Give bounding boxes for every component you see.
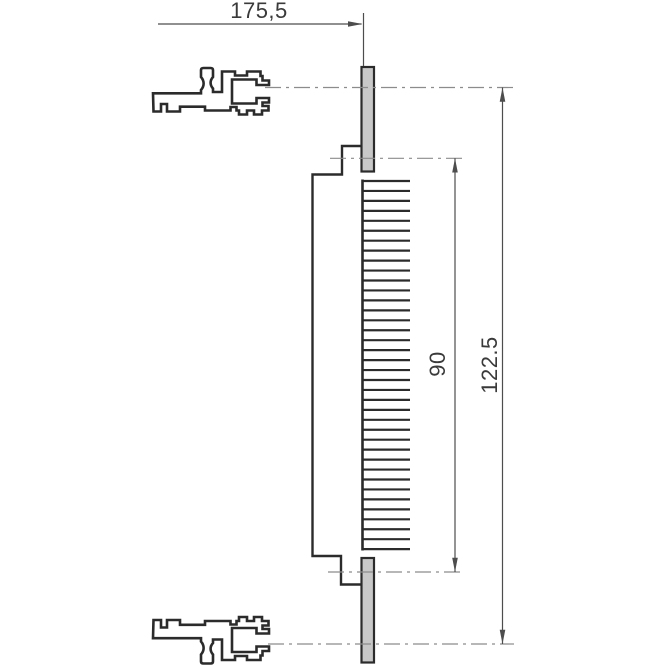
rail-profile-top-section <box>153 68 269 115</box>
drawing-canvas: 175,5 90 122.5 <box>0 0 665 665</box>
rail-profile-bottom-section <box>153 617 269 664</box>
arrow-up-icon <box>452 158 458 172</box>
arrow-down-icon <box>500 630 506 644</box>
arrow-right-icon <box>348 21 363 27</box>
mounting-flange-bottom <box>362 558 375 663</box>
connector-body-outline <box>313 146 362 585</box>
arrow-down-icon <box>452 558 458 572</box>
dimension-label-90: 90 <box>426 334 450 394</box>
mounting-flange-top <box>362 67 375 172</box>
dimension-label-horizontal: 175,5 <box>199 0 319 23</box>
technical-drawing <box>0 0 665 665</box>
contact-pins <box>362 180 410 551</box>
dimension-label-122: 122.5 <box>478 325 502 405</box>
arrow-up-icon <box>500 88 506 102</box>
